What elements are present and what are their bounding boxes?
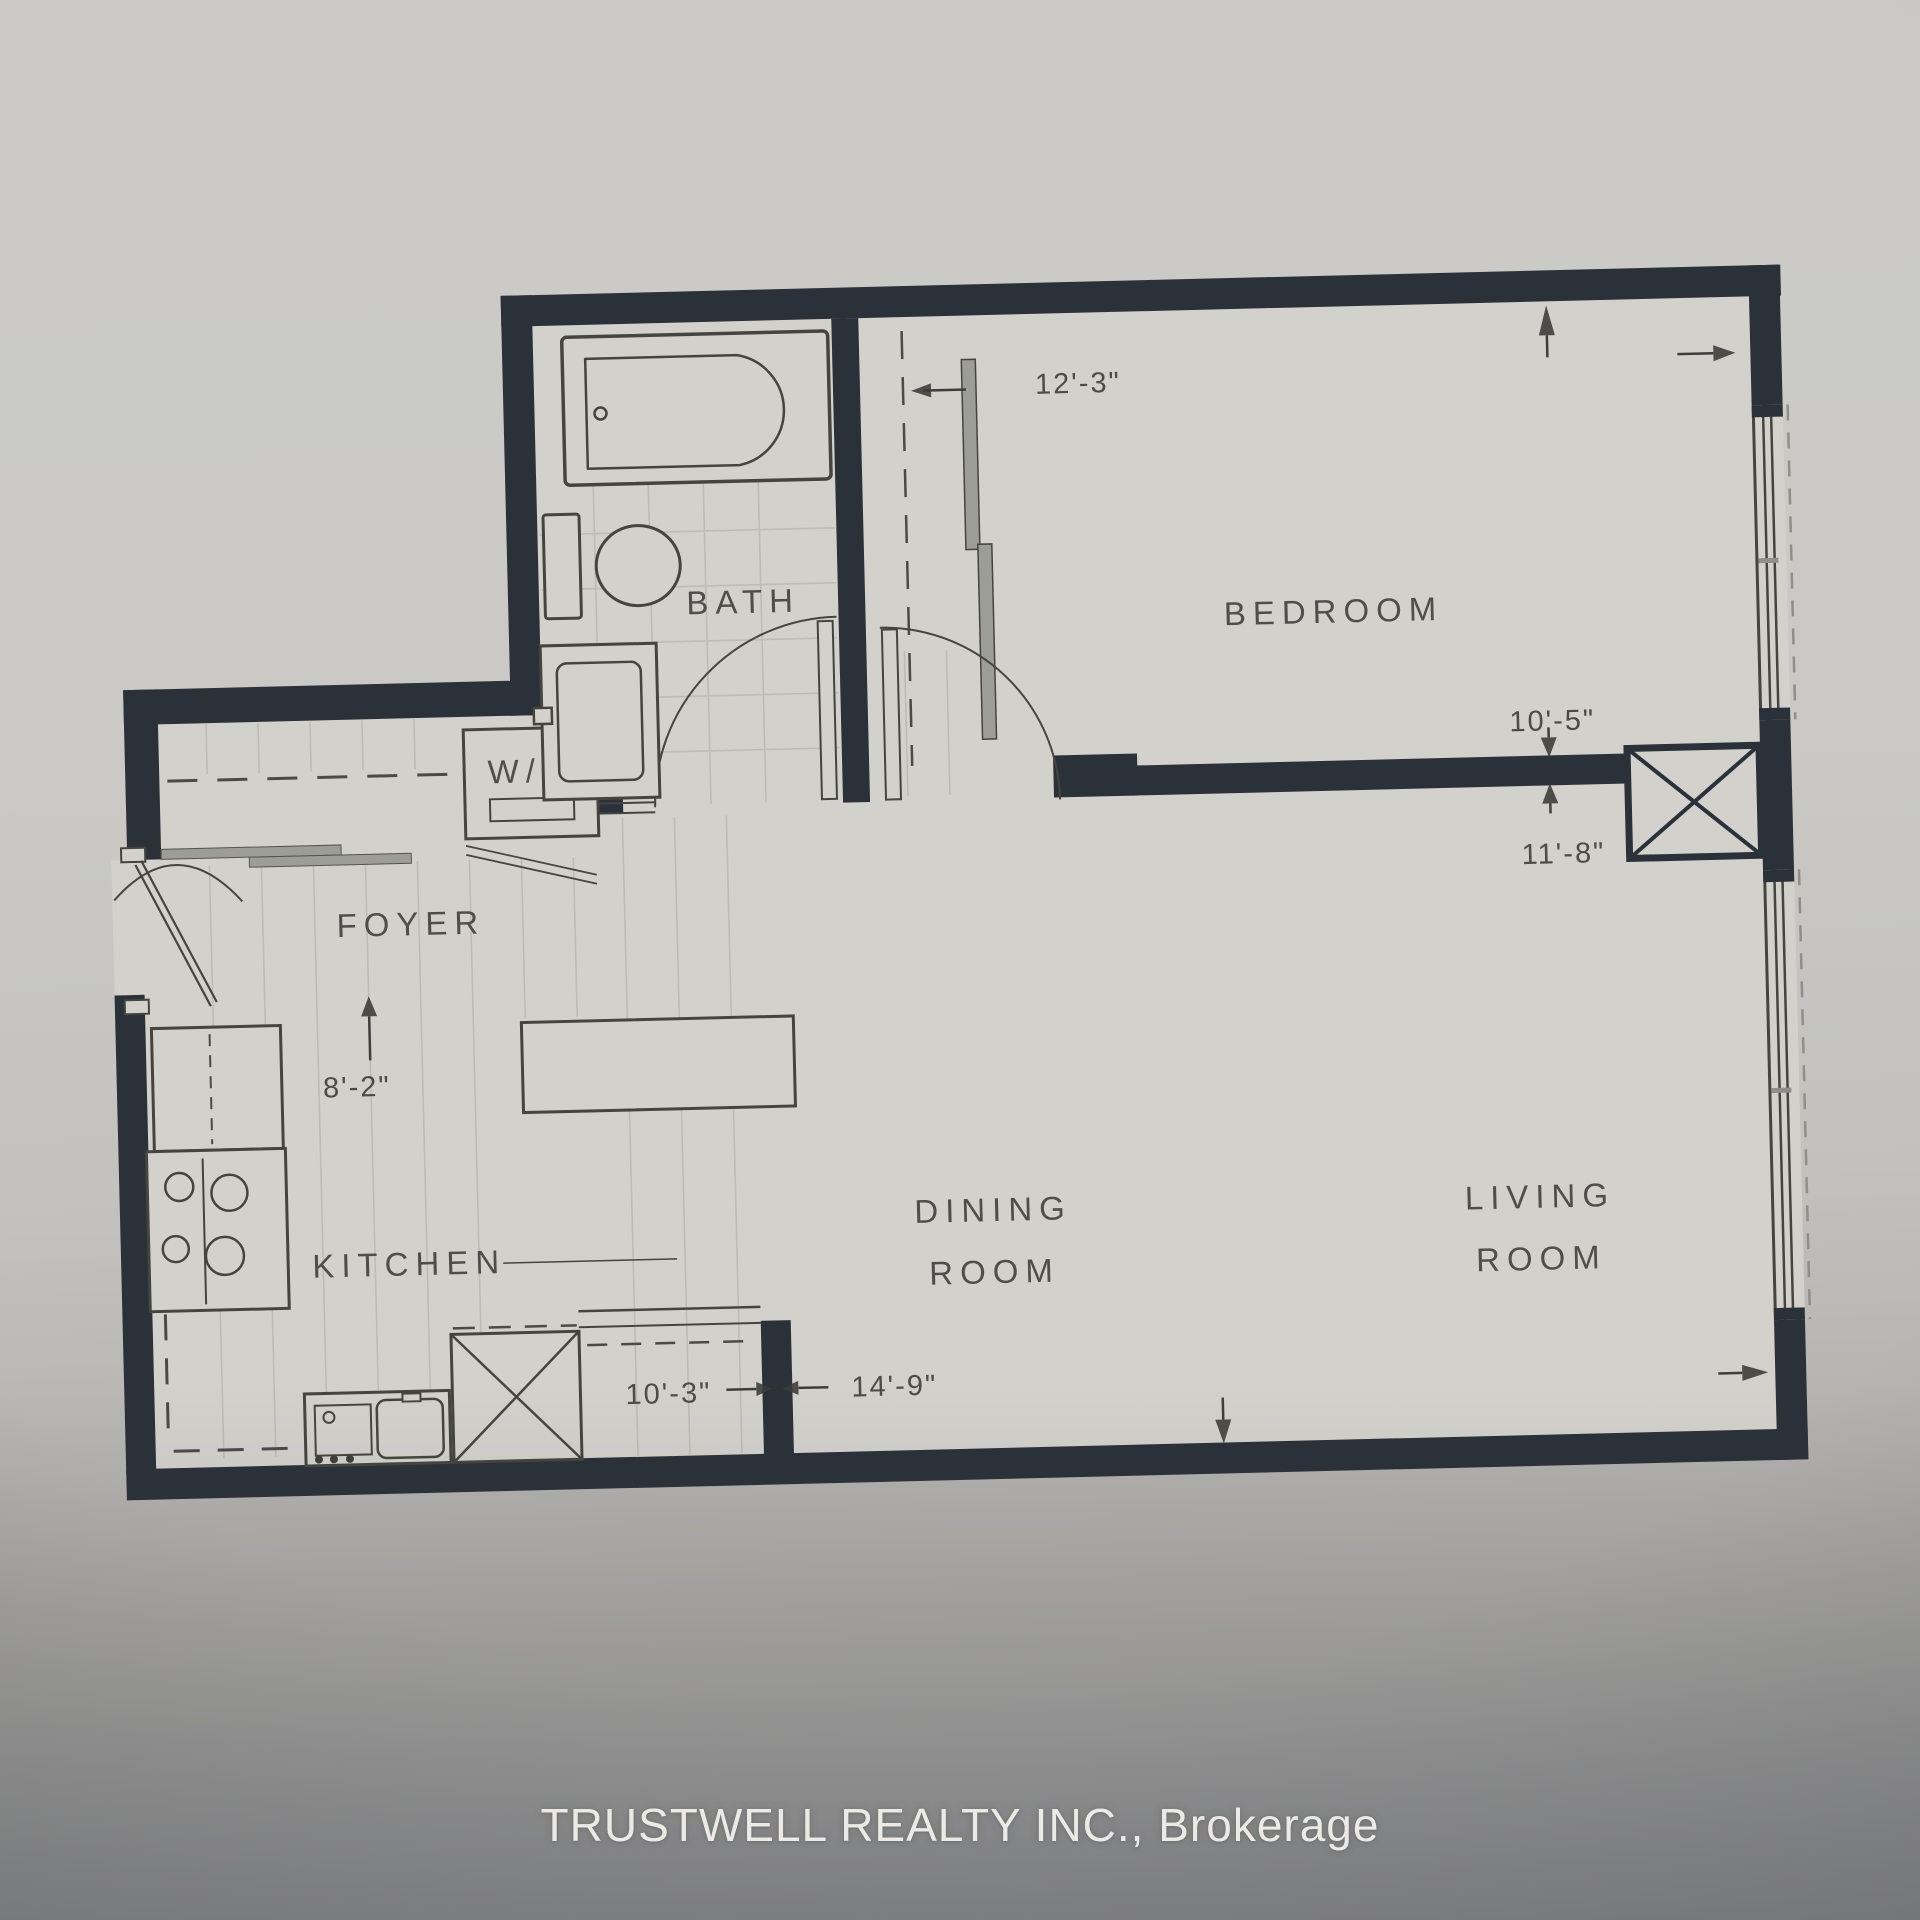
dim-kitchen-width: 8'-2" (323, 1071, 392, 1105)
bedroom-label: BEDROOM (1223, 590, 1443, 632)
dim-living-depth: 14'-9" (851, 1370, 938, 1404)
dim-bedroom-depth: 10'-5" (1509, 704, 1596, 738)
dim-bedroom-width: 12'-3" (1035, 367, 1122, 401)
dim-living-width: 11'-8" (1521, 837, 1605, 871)
brokerage-watermark: TRUSTWELL REALTY INC., Brokerage (541, 1798, 1380, 1852)
bathroom-vanity (532, 643, 660, 800)
shaft-box (1627, 745, 1762, 858)
wall-right-upper-block (1748, 265, 1782, 406)
svg-text:LIVING: LIVING (1464, 1176, 1615, 1217)
kitchen-sink (304, 1390, 451, 1466)
foyer-label: FOYER (336, 903, 486, 944)
kitchen-label: KITCHEN (312, 1243, 507, 1285)
floorplan-image: W/D (0, 0, 1920, 1920)
kitchen-island-counter (521, 1016, 795, 1113)
bath-label: BATH (686, 582, 800, 622)
brokerage-text: TRUSTWELL REALTY INC., Brokerage (541, 1799, 1380, 1851)
bath-door-leaf (818, 621, 837, 799)
dishwasher (451, 1325, 582, 1462)
floorplan: W/D (98, 265, 1814, 1501)
bathtub (562, 331, 832, 485)
svg-text:ROOM: ROOM (929, 1252, 1061, 1292)
wall-bedroom-door-stub (1053, 753, 1138, 797)
svg-text:DINING: DINING (914, 1189, 1072, 1230)
svg-text:ROOM: ROOM (1476, 1238, 1608, 1278)
refrigerator (151, 1025, 283, 1151)
stove (146, 1148, 289, 1311)
dim-kitchen-depth: 10'-3" (625, 1377, 712, 1411)
bedroom-door-leaf (882, 629, 901, 799)
unit-floor (98, 265, 1809, 1501)
